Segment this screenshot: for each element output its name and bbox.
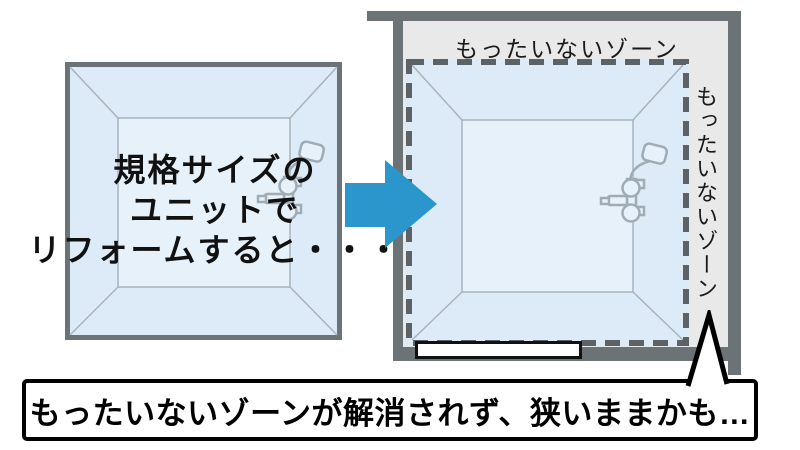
unit-floor	[462, 120, 633, 292]
speech-bubble-text: もったいないゾーンが解消されず、狭いままかも…	[30, 388, 751, 433]
door-threshold	[415, 341, 582, 359]
wall-top	[367, 11, 741, 21]
right-arrow-icon	[345, 158, 440, 250]
wasted-zone-label-side: もったいないゾーン	[691, 68, 721, 318]
right-unit-bath-diagram	[403, 56, 693, 350]
arrow-shape	[345, 160, 437, 248]
diagram-canvas: 規格サイズの ユニットで リフォームすると・・・ もったいないゾーン もったいな…	[0, 0, 800, 450]
speech-bubble-tail	[683, 310, 735, 390]
speech-bubble: もったいないゾーンが解消されず、狭いままかも…	[22, 379, 758, 441]
